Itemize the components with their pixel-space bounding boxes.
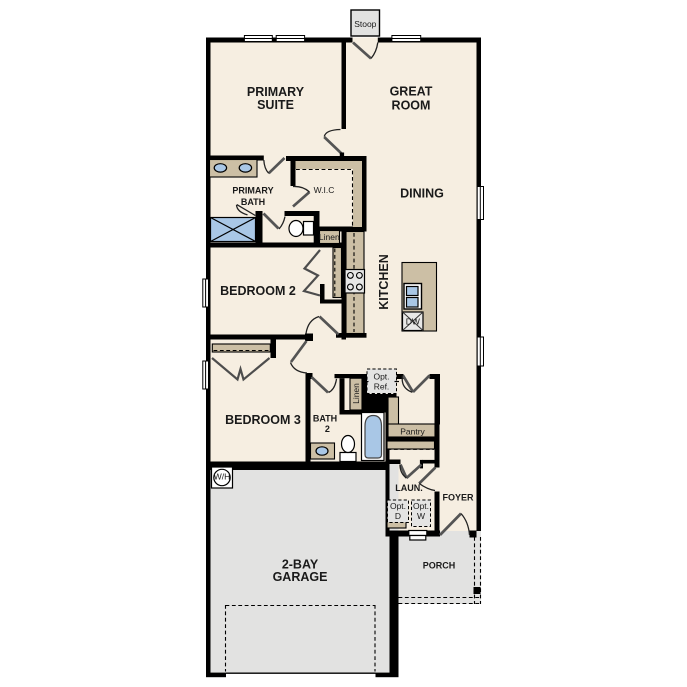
svg-text:W/H: W/H (214, 472, 231, 482)
svg-text:FOYER: FOYER (442, 493, 474, 503)
svg-text:Opt.: Opt. (373, 371, 389, 381)
svg-text:2: 2 (325, 424, 330, 434)
svg-text:GREAT: GREAT (390, 84, 433, 98)
svg-text:W.I.C: W.I.C (314, 185, 335, 195)
svg-text:DW: DW (406, 316, 420, 326)
svg-text:KITCHEN: KITCHEN (377, 254, 391, 310)
svg-text:BEDROOM 3: BEDROOM 3 (225, 413, 301, 427)
svg-text:Pantry: Pantry (400, 426, 425, 436)
svg-text:DINING: DINING (400, 186, 444, 200)
svg-text:Stoop: Stoop (354, 19, 376, 29)
svg-text:LAUN.: LAUN. (395, 483, 423, 493)
svg-text:GARAGE: GARAGE (273, 570, 328, 584)
svg-text:D: D (395, 511, 401, 521)
svg-text:SUITE: SUITE (257, 98, 294, 112)
svg-text:Linen: Linen (351, 383, 361, 404)
svg-text:BEDROOM 2: BEDROOM 2 (220, 284, 296, 298)
svg-text:Opt.: Opt. (413, 501, 429, 511)
svg-text:PRIMARY: PRIMARY (232, 185, 273, 195)
svg-text:BATH: BATH (241, 197, 265, 207)
svg-text:Opt.: Opt. (390, 501, 406, 511)
svg-text:BATH: BATH (313, 414, 337, 424)
svg-text:Ref.: Ref. (374, 381, 390, 391)
svg-text:W: W (417, 511, 425, 521)
svg-text:ROOM: ROOM (392, 98, 431, 112)
svg-text:PORCH: PORCH (423, 561, 456, 571)
svg-text:PRIMARY: PRIMARY (247, 85, 305, 99)
svg-text:Linen: Linen (319, 232, 340, 242)
